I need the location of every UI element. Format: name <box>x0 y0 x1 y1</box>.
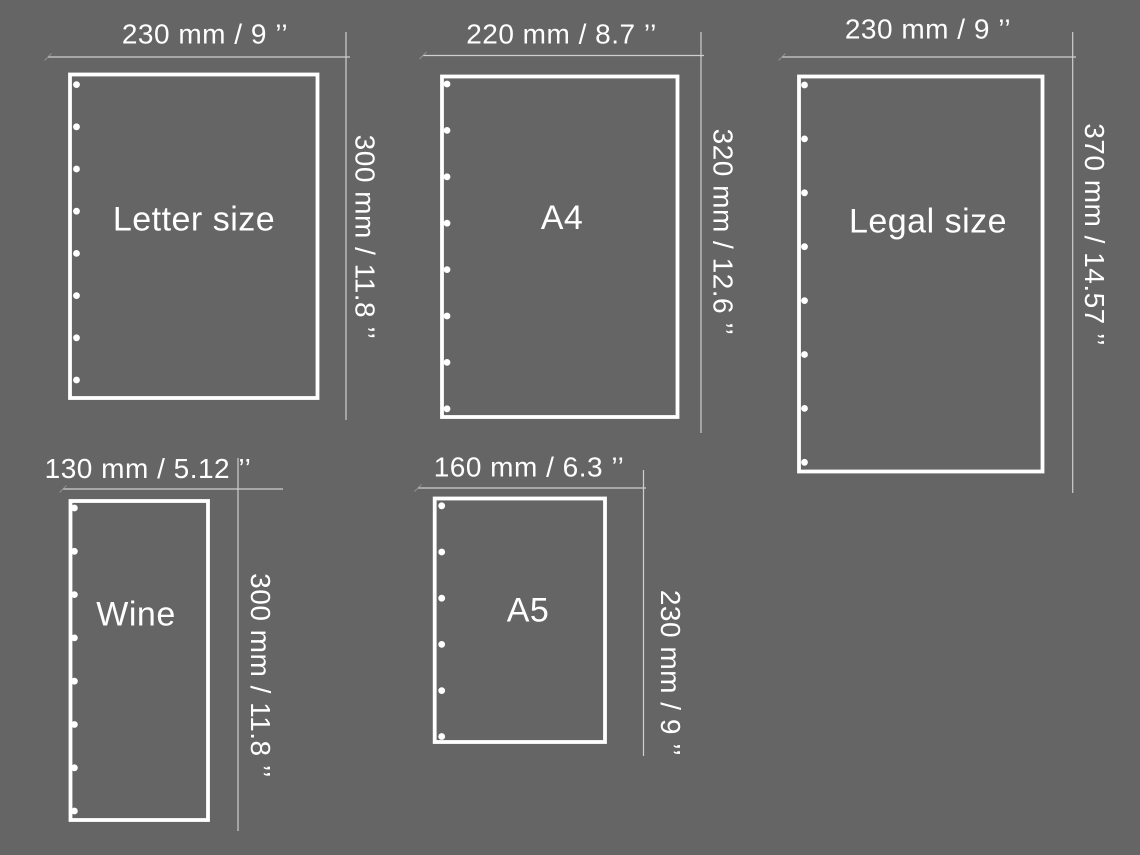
svg-text:A4: A4 <box>541 199 584 237</box>
svg-text:370 mm / 14.57 ’’: 370 mm / 14.57 ’’ <box>1079 123 1110 346</box>
svg-text:320 mm / 12.6 ’’: 320 mm / 12.6 ’’ <box>707 129 738 336</box>
svg-text:230 mm / 9 ’’: 230 mm / 9 ’’ <box>122 19 288 50</box>
svg-text:130 mm / 5.12 ’’: 130 mm / 5.12 ’’ <box>45 453 252 484</box>
svg-text:230 mm / 9 ’’: 230 mm / 9 ’’ <box>845 14 1011 45</box>
svg-text:220 mm / 8.7 ’’: 220 mm / 8.7 ’’ <box>466 18 657 49</box>
svg-text:Legal size: Legal size <box>849 203 1007 241</box>
svg-text:Wine: Wine <box>96 595 175 633</box>
svg-text:A5: A5 <box>507 592 550 630</box>
svg-text:230 mm / 9 ’’: 230 mm / 9 ’’ <box>655 590 686 756</box>
svg-text:Letter size: Letter size <box>113 200 275 238</box>
svg-text:300 mm / 11.8 ’’: 300 mm / 11.8 ’’ <box>350 135 381 340</box>
svg-text:160 mm / 6.3 ’’: 160 mm / 6.3 ’’ <box>434 451 625 482</box>
svg-text:300 mm / 11.8 ’’: 300 mm / 11.8 ’’ <box>245 573 276 778</box>
